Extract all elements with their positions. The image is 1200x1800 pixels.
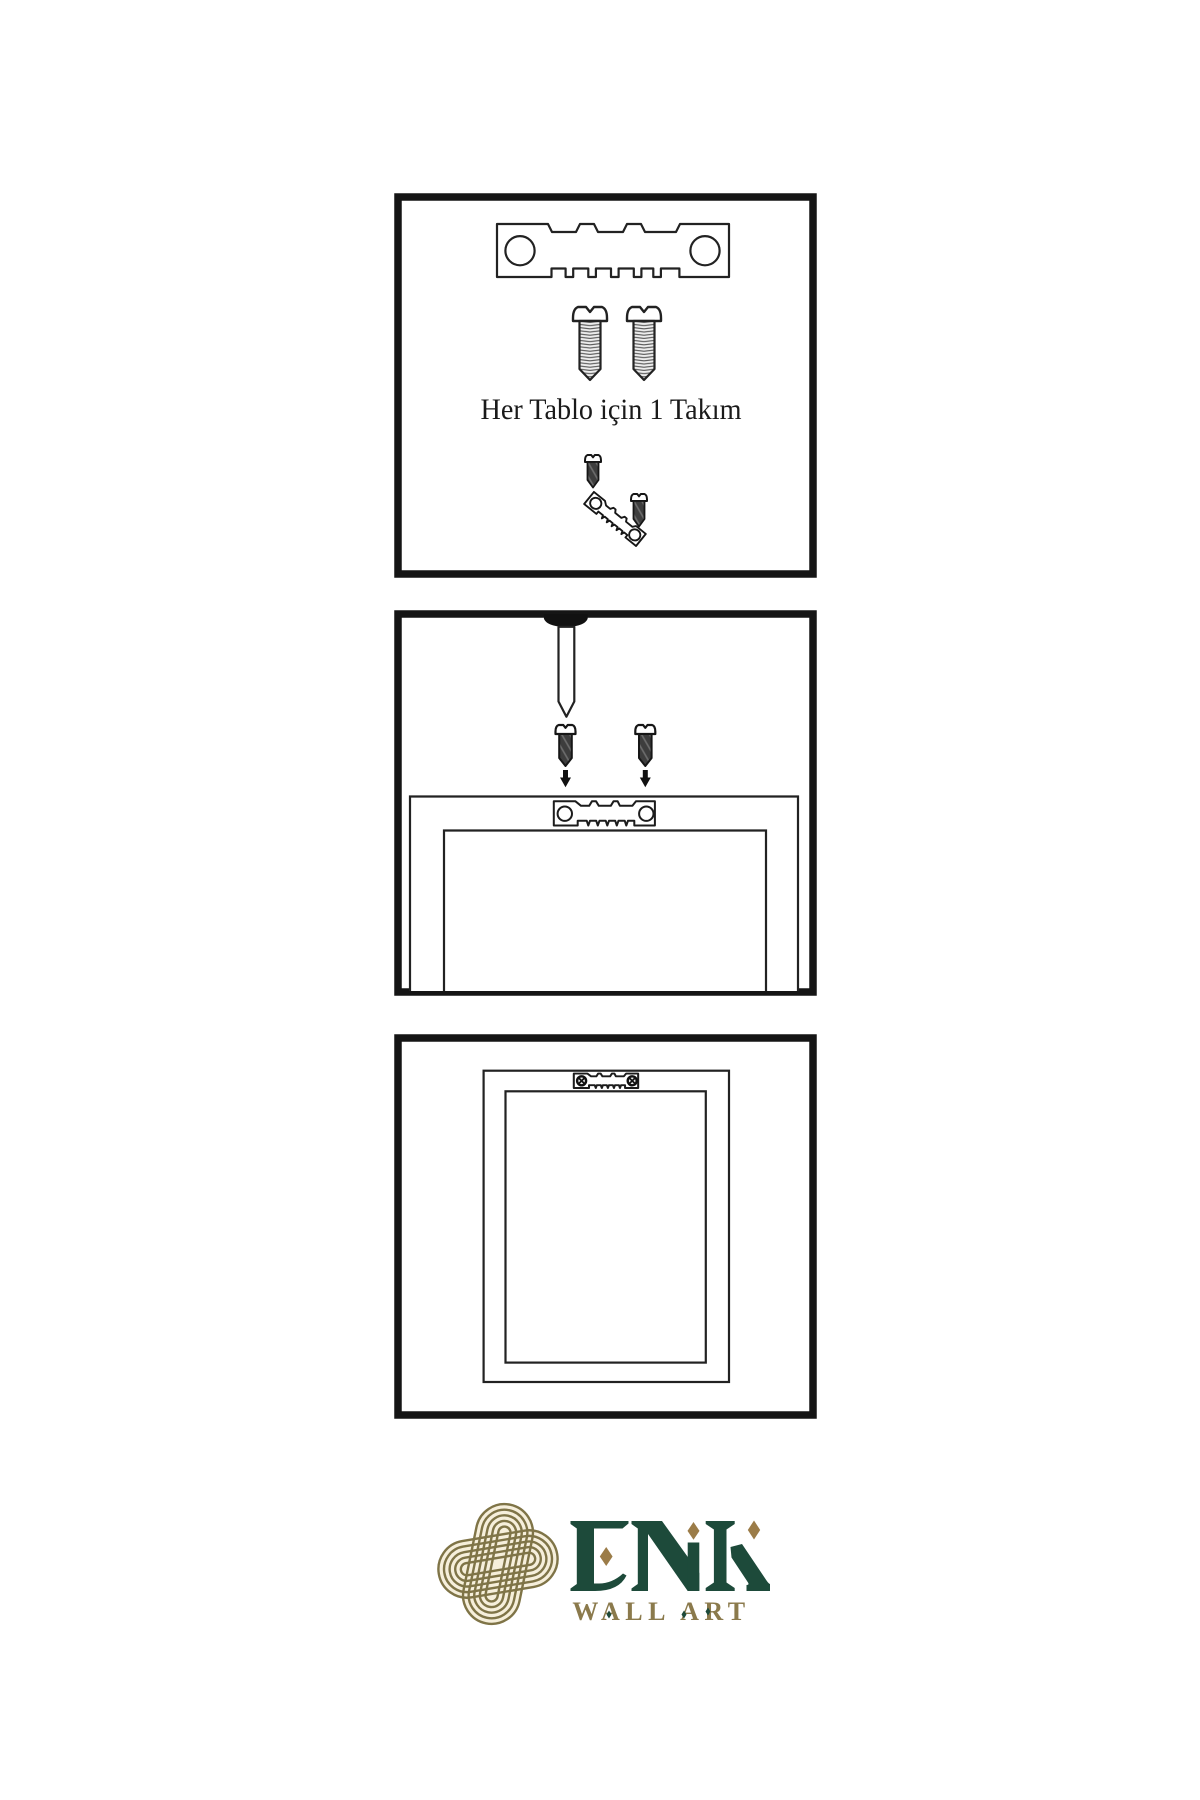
svg-text:WALL ART: WALL ART xyxy=(572,1597,750,1626)
svg-text:Her Tablo için 1 Takım: Her Tablo için 1 Takım xyxy=(481,393,742,426)
